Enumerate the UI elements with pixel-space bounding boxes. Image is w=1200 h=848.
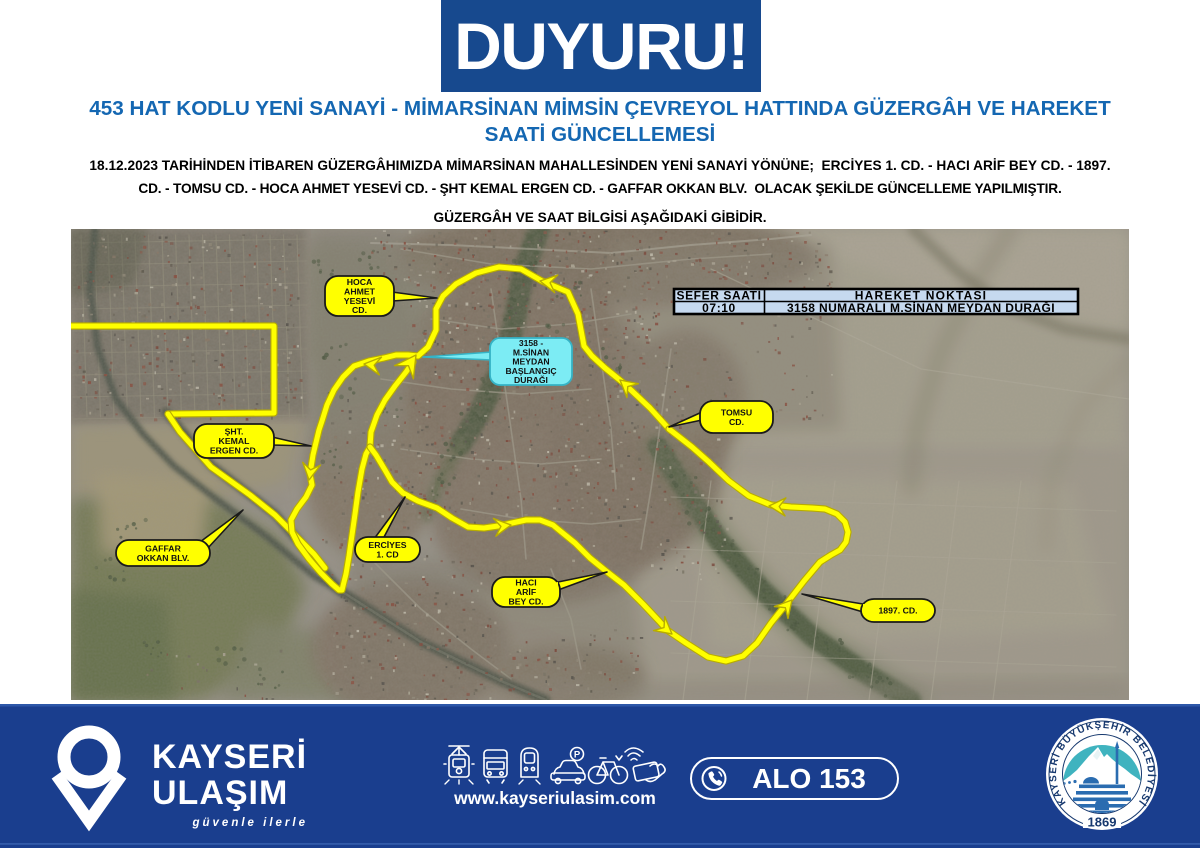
svg-text:CD.: CD. <box>729 417 744 427</box>
svg-text:1. CD: 1. CD <box>376 549 398 559</box>
svg-text:1869: 1869 <box>1088 815 1117 830</box>
svg-text:07:10: 07:10 <box>702 301 736 315</box>
svg-text:KAYSERİ: KAYSERİ <box>152 738 307 776</box>
svg-text:3158 NUMARALI M.SİNAN MEYDAN: 3158 NUMARALI M.SİNAN MEYDAN DURAĞI <box>787 300 1055 315</box>
svg-text:ULAŞIM: ULAŞIM <box>152 774 288 812</box>
svg-text:BEY CD.: BEY CD. <box>508 597 543 607</box>
svg-text:OKKAN BLV.: OKKAN BLV. <box>137 553 190 563</box>
svg-text:P: P <box>574 750 581 761</box>
svg-text:ERGEN CD.: ERGEN CD. <box>210 446 258 456</box>
svg-text:DURAĞI: DURAĞI <box>514 374 548 385</box>
svg-text:ALO 153: ALO 153 <box>752 763 866 794</box>
svg-text:1897. CD.: 1897. CD. <box>878 606 917 616</box>
svg-text:www.kayseriulasim.com: www.kayseriulasim.com <box>453 788 656 808</box>
svg-text:CD.: CD. <box>352 305 367 315</box>
svg-text:güvenle ilerle: güvenle ilerle <box>191 817 308 829</box>
